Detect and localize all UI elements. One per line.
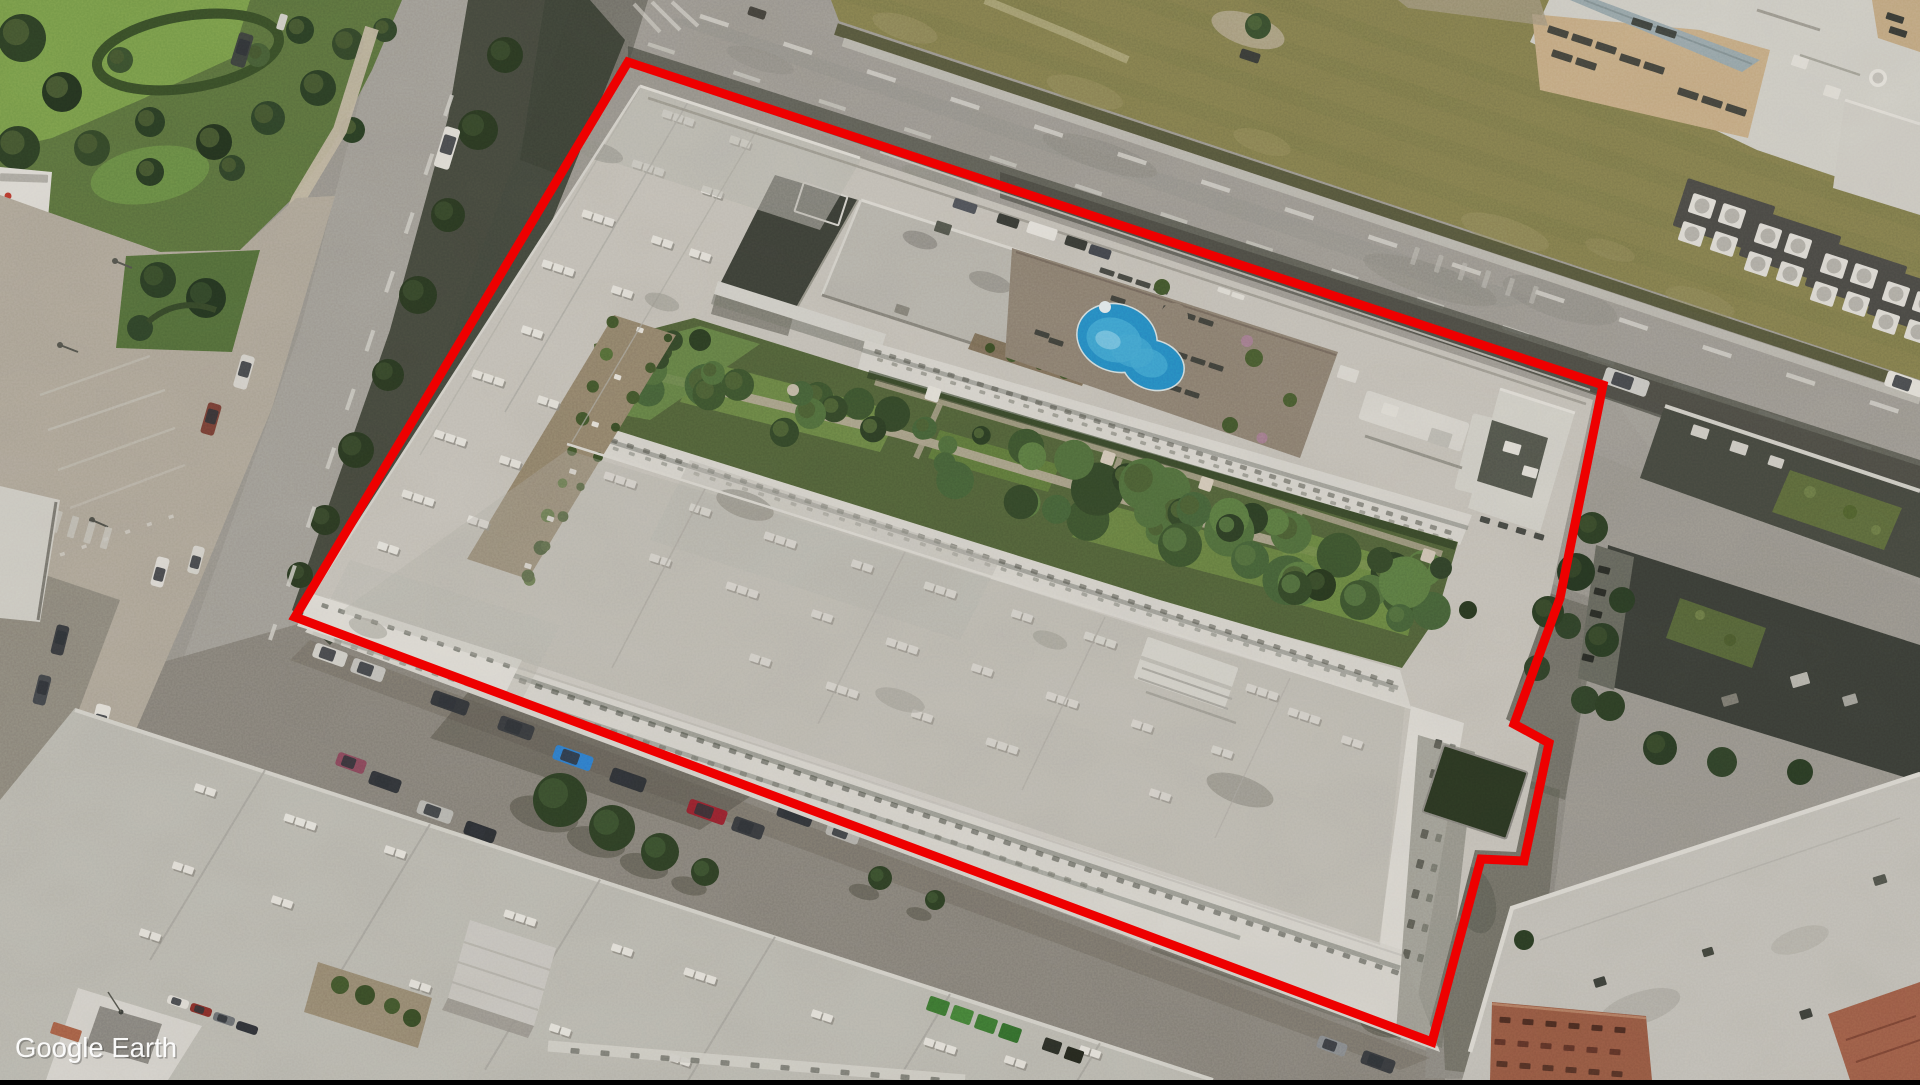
svg-text:Google Earth: Google Earth [15,1032,177,1063]
